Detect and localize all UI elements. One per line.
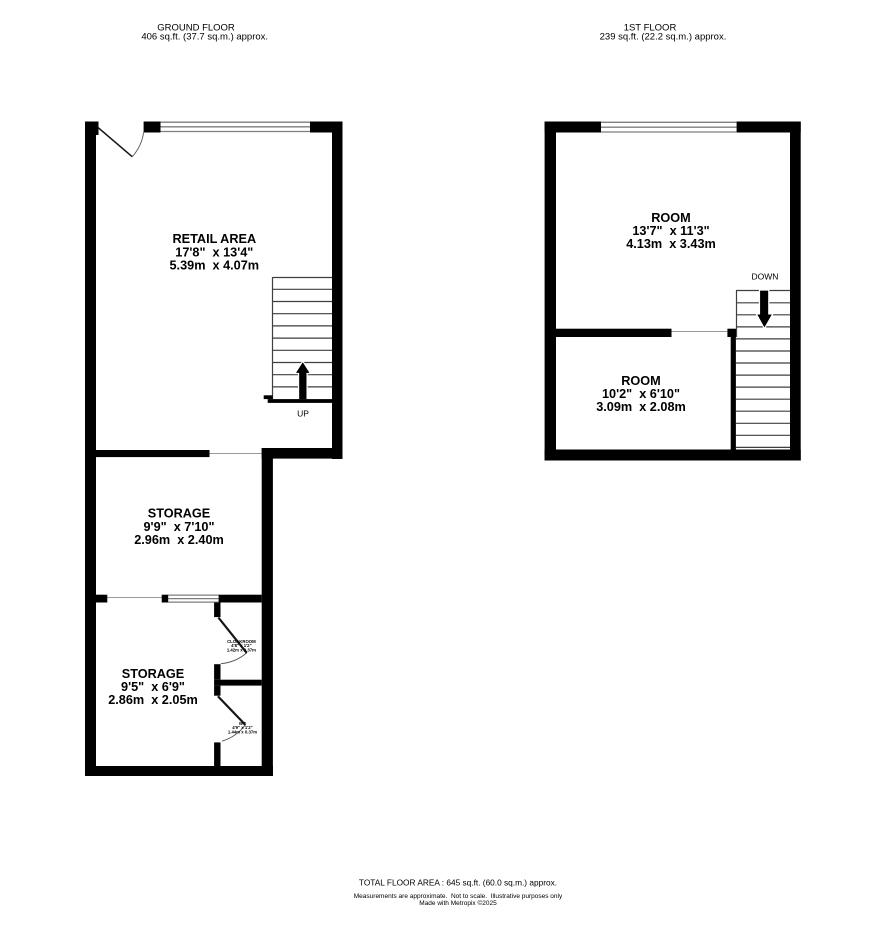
svg-text:9'9" x 7'10": 9'9" x 7'10" — [144, 520, 215, 534]
svg-text:239 sq.ft. (22.2 sq.m.) approx: 239 sq.ft. (22.2 sq.m.) approx. — [600, 31, 727, 42]
svg-text:4.13m x 3.43m: 4.13m x 3.43m — [626, 237, 716, 251]
svg-text:TOTAL FLOOR AREA : 645 sq.ft.: TOTAL FLOOR AREA : 645 sq.ft. (60.0 sq.m… — [359, 877, 557, 887]
svg-text:DOWN: DOWN — [751, 272, 778, 282]
svg-text:Made with Metropix ©2025: Made with Metropix ©2025 — [419, 899, 497, 907]
svg-text:10'2" x 6'10": 10'2" x 6'10" — [602, 387, 680, 401]
svg-text:STORAGE: STORAGE — [148, 507, 211, 521]
svg-text:2.96m x 2.40m: 2.96m x 2.40m — [134, 533, 224, 547]
svg-text:2.86m x 2.05m: 2.86m x 2.05m — [108, 693, 198, 707]
svg-text:RETAIL AREA: RETAIL AREA — [172, 232, 256, 246]
svg-text:17'8" x 13'4": 17'8" x 13'4" — [175, 245, 253, 259]
svg-text:ROOM: ROOM — [651, 211, 690, 225]
svg-text:1.44m x 0.37m: 1.44m x 0.37m — [228, 729, 257, 734]
svg-text:STORAGE: STORAGE — [122, 667, 185, 681]
svg-text:UP: UP — [297, 409, 309, 419]
svg-text:Measurements are approximate.: Measurements are approximate. Not to sca… — [354, 893, 563, 900]
svg-text:ROOM: ROOM — [621, 374, 660, 388]
svg-text:3.09m x 2.08m: 3.09m x 2.08m — [596, 400, 686, 414]
svg-text:13'7" x 11'3": 13'7" x 11'3" — [632, 224, 709, 238]
svg-text:406 sq.ft. (37.7 sq.m.) approx: 406 sq.ft. (37.7 sq.m.) approx. — [141, 31, 268, 42]
svg-text:1.42m x 0.37m: 1.42m x 0.37m — [227, 647, 256, 652]
svg-text:5.39m x 4.07m: 5.39m x 4.07m — [170, 259, 260, 273]
svg-text:9'5" x 6'9": 9'5" x 6'9" — [121, 680, 185, 694]
